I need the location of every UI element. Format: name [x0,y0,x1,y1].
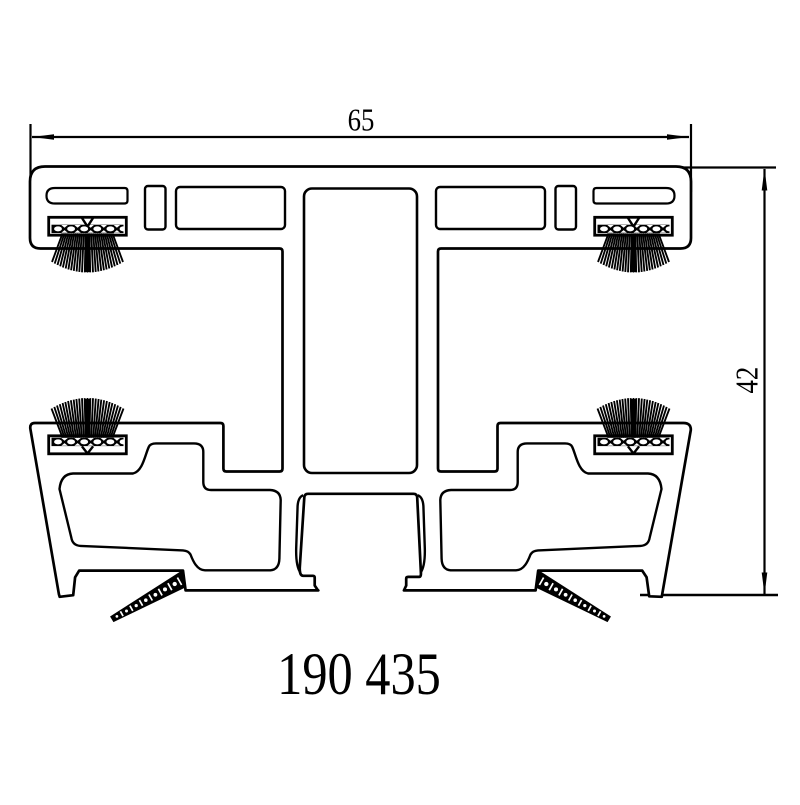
svg-text:42: 42 [731,367,765,394]
svg-text:190 435: 190 435 [277,641,441,707]
svg-text:65: 65 [348,104,375,138]
